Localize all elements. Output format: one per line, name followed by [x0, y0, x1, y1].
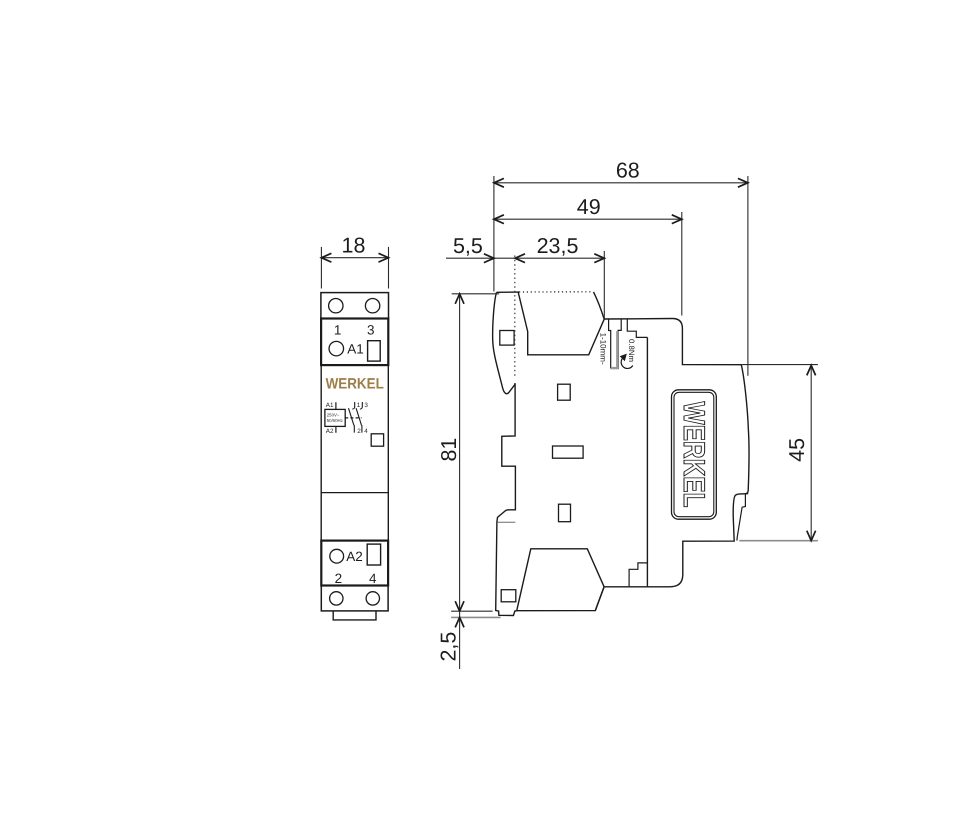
svg-text:81: 81	[437, 438, 461, 462]
svg-text:3: 3	[364, 402, 368, 409]
svg-text:2,5: 2,5	[437, 632, 461, 662]
svg-text:45: 45	[785, 438, 809, 462]
svg-text:4: 4	[364, 428, 368, 435]
svg-text:23,5: 23,5	[537, 234, 579, 258]
svg-text:A1: A1	[347, 342, 364, 357]
svg-text:A2: A2	[326, 428, 334, 435]
svg-text:A1: A1	[326, 402, 334, 409]
svg-text:A2: A2	[346, 549, 363, 564]
svg-text:250V~: 250V~	[327, 413, 340, 418]
svg-text:1-10mm-: 1-10mm-	[598, 333, 607, 365]
svg-text:68: 68	[616, 158, 640, 182]
svg-text:50/60Hz: 50/60Hz	[327, 418, 343, 423]
svg-text:1: 1	[357, 402, 361, 409]
svg-text:0.8Nm: 0.8Nm	[627, 339, 636, 362]
svg-text:WERKEL: WERKEL	[677, 402, 710, 508]
svg-text:3: 3	[367, 322, 375, 337]
svg-text:WERKEL: WERKEL	[326, 376, 384, 393]
svg-text:1: 1	[334, 322, 342, 337]
svg-text:18: 18	[342, 233, 366, 257]
svg-text:49: 49	[577, 195, 601, 219]
svg-text:5,5: 5,5	[453, 234, 483, 258]
svg-text:2: 2	[357, 428, 361, 435]
svg-text:2: 2	[335, 571, 343, 586]
svg-text:4: 4	[369, 571, 377, 586]
